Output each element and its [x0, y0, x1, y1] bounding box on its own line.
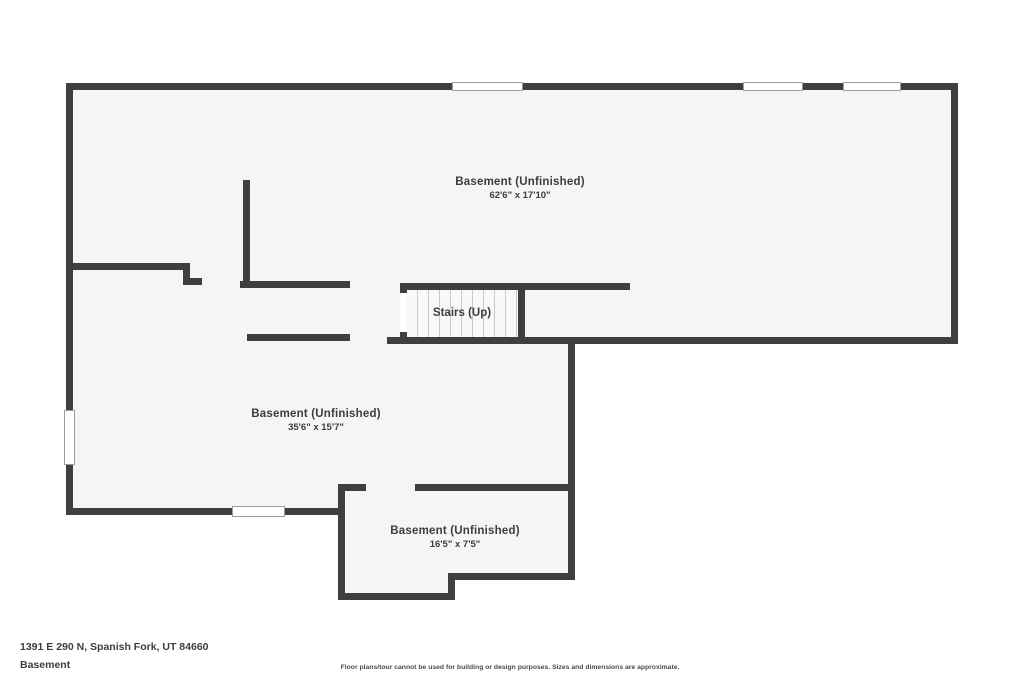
wall-partition-upper	[240, 281, 350, 288]
property-address: 1391 E 290 N, Spanish Fork, UT 84660	[20, 641, 209, 653]
disclaimer-text: Floor plans/tour cannot be used for buil…	[341, 664, 680, 671]
window-bottom	[232, 506, 285, 517]
wall-stairs-top	[400, 283, 630, 290]
room-title-bottom: Basement (Unfinished)	[390, 525, 519, 537]
room-dims-middle: 35'6" x 15'7"	[251, 422, 380, 433]
room-dims-bottom: 16'5" x 7'5"	[390, 539, 519, 550]
room-label-top: Basement (Unfinished) 62'6" x 17'10"	[455, 176, 584, 201]
wall-bottom-room-left	[338, 484, 345, 600]
window-left	[64, 410, 75, 465]
wall-stairs-right	[518, 283, 525, 344]
wall-bottom-room-top-right	[415, 484, 575, 491]
wall-bottom-room-top-left	[338, 484, 366, 491]
room-label-middle: Basement (Unfinished) 35'6" x 15'7"	[251, 408, 380, 433]
window-top-1	[452, 82, 523, 91]
wall-middle-room-bottom	[66, 508, 345, 515]
stairs-door-opening	[400, 293, 407, 332]
floor-level-label: Basement	[20, 659, 70, 671]
wall-partition-left-foot	[183, 278, 202, 285]
floor-plan: Stairs (Up) Basement (Unfinished) 62'6" …	[0, 0, 1024, 683]
room-fill-bottom-notch	[345, 580, 448, 593]
wall-bottom-room-step-horizontal	[448, 573, 575, 580]
wall-right-lower	[568, 337, 575, 580]
wall-partition-left	[66, 263, 190, 270]
room-title-top: Basement (Unfinished)	[455, 176, 584, 188]
room-title-middle: Basement (Unfinished)	[251, 408, 380, 420]
window-top-3	[843, 82, 901, 91]
stairs-label: Stairs (Up)	[433, 307, 491, 319]
room-dims-top: 62'6" x 17'10"	[455, 190, 584, 201]
wall-partition-lower	[247, 334, 350, 341]
wall-outer-right	[951, 83, 958, 344]
room-label-bottom: Basement (Unfinished) 16'5" x 7'5"	[390, 525, 519, 550]
wall-bottom-room-bottom	[338, 593, 455, 600]
window-top-2	[743, 82, 803, 91]
wall-top-room-bottom	[387, 337, 958, 344]
wall-partition-vertical	[243, 180, 250, 285]
